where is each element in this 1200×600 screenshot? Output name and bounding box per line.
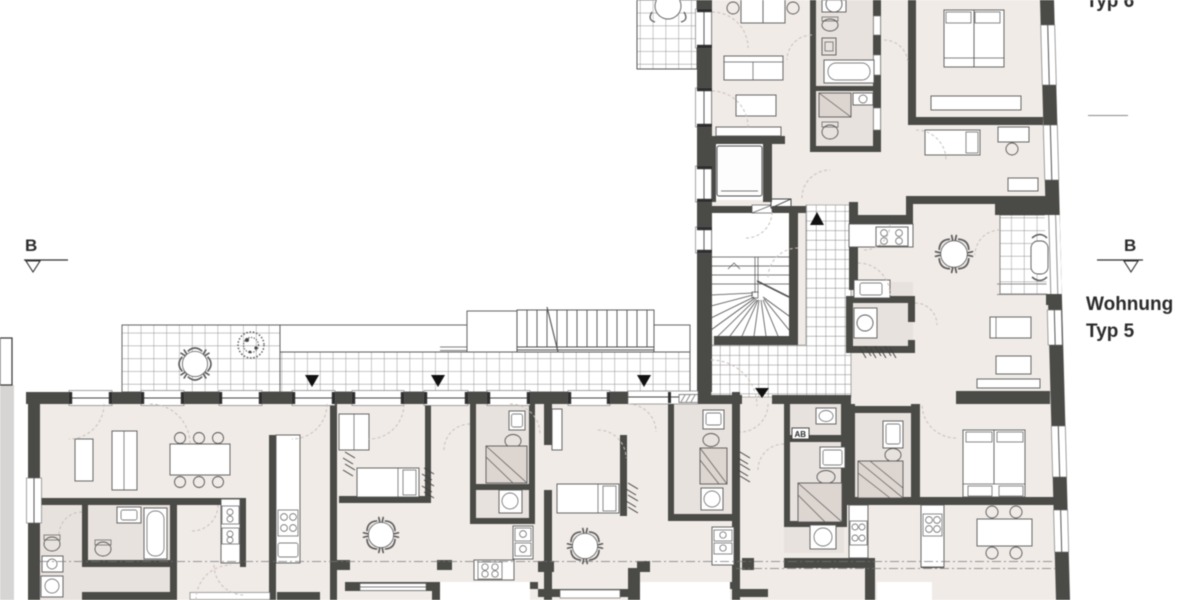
svg-text:Wohnung: Wohnung [1086,294,1173,315]
svg-text:B: B [25,236,37,255]
svg-text:B: B [1124,236,1136,255]
svg-text:AB: AB [795,430,807,439]
svg-text:Typ 5: Typ 5 [1086,321,1135,342]
svg-text:Typ 6: Typ 6 [1086,0,1134,12]
